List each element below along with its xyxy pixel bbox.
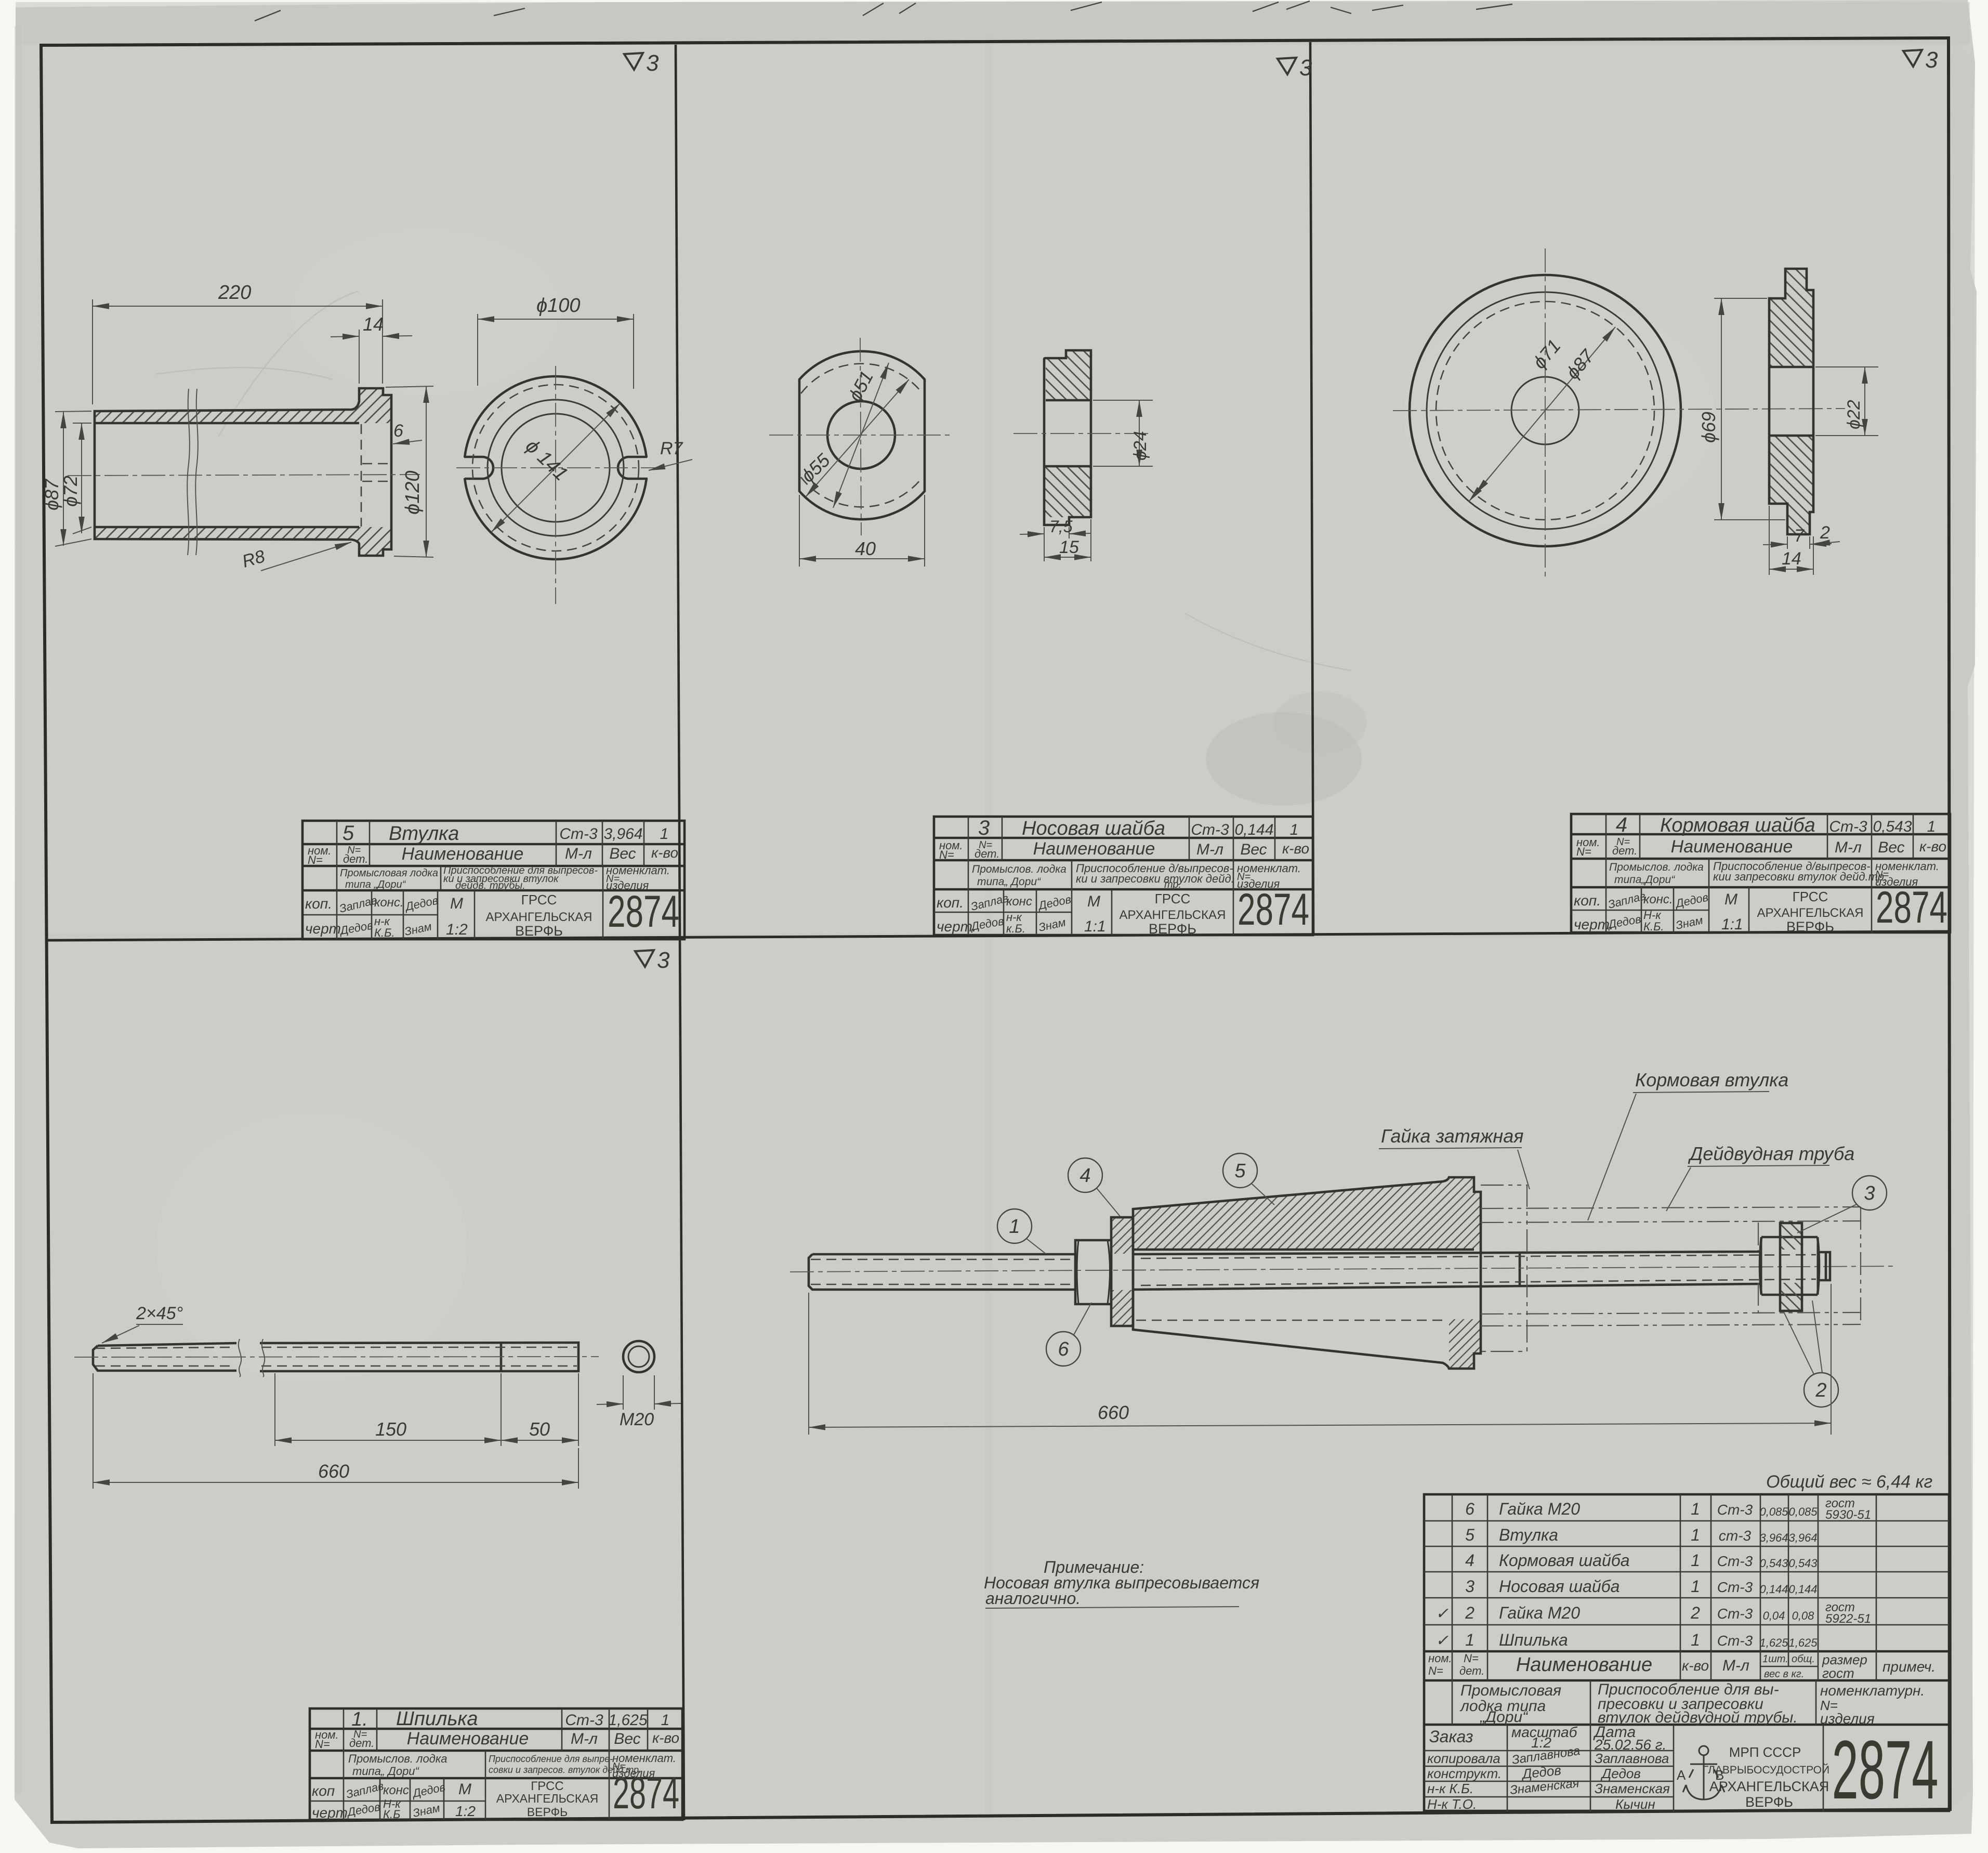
svg-text:Ст-3: Ст-3 bbox=[559, 825, 598, 843]
svg-text:Кычин: Кычин bbox=[1615, 1796, 1655, 1812]
svg-text:2: 2 bbox=[1465, 1604, 1474, 1622]
svg-text:0,144: 0,144 bbox=[1759, 1583, 1788, 1596]
svg-text:Промысловая: Промысловая bbox=[1460, 1682, 1561, 1699]
svg-text:ϕ22: ϕ22 bbox=[1844, 400, 1864, 429]
svg-text:3: 3 bbox=[978, 817, 990, 839]
svg-text:примеч.: примеч. bbox=[1882, 1659, 1936, 1675]
svg-text:М: М bbox=[458, 1781, 471, 1798]
svg-text:4: 4 bbox=[1616, 813, 1627, 836]
svg-text:Шпилька: Шпилька bbox=[1499, 1631, 1568, 1649]
svg-text:N=: N= bbox=[939, 848, 954, 861]
svg-text:М-л: М-л bbox=[1722, 1657, 1749, 1674]
svg-text:копировала: копировала bbox=[1427, 1751, 1500, 1766]
svg-text:3,964: 3,964 bbox=[603, 825, 642, 843]
svg-text:Ст-3: Ст-3 bbox=[1717, 1579, 1753, 1595]
svg-text:Вес: Вес bbox=[1878, 839, 1904, 856]
svg-text:6: 6 bbox=[1465, 1500, 1474, 1518]
svg-text:Дедов: Дедов bbox=[1600, 1766, 1641, 1781]
svg-text:Ст-3: Ст-3 bbox=[1717, 1502, 1753, 1518]
svg-text:1шт.: 1шт. bbox=[1762, 1653, 1788, 1665]
svg-text:к.Б.: к.Б. bbox=[1006, 922, 1025, 935]
svg-text:М-л: М-л bbox=[571, 1730, 598, 1747]
svg-text:общ.: общ. bbox=[1792, 1653, 1815, 1665]
svg-text:Общий вес ≈ 6,44 кг: Общий вес ≈ 6,44 кг bbox=[1766, 1472, 1932, 1492]
svg-text:М-л: М-л bbox=[1196, 841, 1223, 858]
svg-text:дет.: дет. bbox=[349, 1737, 374, 1750]
svg-text:3: 3 bbox=[1925, 47, 1938, 73]
svg-text:к-во: к-во bbox=[651, 845, 678, 861]
svg-text:3,964: 3,964 bbox=[1788, 1531, 1817, 1544]
svg-text:2: 2 bbox=[1820, 523, 1830, 543]
svg-text:6: 6 bbox=[393, 421, 403, 441]
svg-text:Вес: Вес bbox=[1240, 841, 1267, 858]
svg-text:ст-3: ст-3 bbox=[1719, 1528, 1752, 1544]
svg-text:Ст-3: Ст-3 bbox=[1829, 818, 1867, 835]
svg-text:ГРСС: ГРСС bbox=[1155, 891, 1191, 906]
svg-text:1: 1 bbox=[1691, 1551, 1700, 1570]
svg-text:дет.: дет. bbox=[343, 852, 368, 865]
svg-text:типа„Дори“: типа„Дори“ bbox=[1614, 874, 1675, 886]
svg-text:дет.: дет. bbox=[1612, 844, 1637, 857]
svg-text:N=: N= bbox=[1428, 1664, 1443, 1677]
svg-text:кии запресовки втулок дейд.тр.: кии запресовки втулок дейд.тр. bbox=[1713, 870, 1887, 883]
svg-text:МРП СССР: МРП СССР bbox=[1729, 1744, 1801, 1760]
svg-text:к-во: к-во bbox=[1682, 1658, 1709, 1674]
svg-text:к-во: к-во bbox=[1282, 840, 1309, 857]
svg-text:0,543: 0,543 bbox=[1788, 1557, 1818, 1570]
svg-text:Вес: Вес bbox=[609, 845, 636, 862]
svg-text:5922-51: 5922-51 bbox=[1825, 1612, 1871, 1626]
svg-text:Приспособление для выпре-: Приспособление для выпре- bbox=[489, 1754, 613, 1764]
svg-text:Заказ: Заказ bbox=[1429, 1727, 1473, 1746]
svg-text:2874: 2874 bbox=[1832, 1723, 1939, 1816]
svg-text:2×45°: 2×45° bbox=[136, 1304, 183, 1323]
svg-text:1:1: 1:1 bbox=[1721, 916, 1743, 933]
svg-text:5: 5 bbox=[1234, 1160, 1246, 1182]
svg-text:коп.: коп. bbox=[1574, 892, 1601, 909]
svg-text:Шпилька: Шпилька bbox=[396, 1708, 478, 1730]
svg-text:ВЕРФЬ: ВЕРФЬ bbox=[1745, 1794, 1793, 1810]
svg-text:ВЕРФЬ: ВЕРФЬ bbox=[1786, 919, 1834, 935]
svg-text:н-к К.Б.: н-к К.Б. bbox=[1427, 1781, 1473, 1796]
svg-text:Кормовая втулка: Кормовая втулка bbox=[1635, 1069, 1788, 1090]
svg-text:Ст-3: Ст-3 bbox=[1191, 821, 1229, 838]
svg-text:Носовая шайба: Носовая шайба bbox=[1022, 818, 1165, 839]
svg-text:М-л: М-л bbox=[1835, 839, 1862, 856]
svg-text:Втулка: Втулка bbox=[1499, 1526, 1558, 1544]
svg-text:Промыслов. лодка: Промыслов. лодка bbox=[1609, 861, 1704, 873]
svg-text:660: 660 bbox=[318, 1461, 349, 1482]
svg-text:ϕ120: ϕ120 bbox=[402, 470, 424, 515]
svg-text:1:2: 1:2 bbox=[455, 1803, 476, 1819]
svg-text:14: 14 bbox=[363, 313, 384, 335]
svg-text:ном.: ном. bbox=[1428, 1652, 1452, 1665]
svg-text:2: 2 bbox=[1690, 1604, 1700, 1622]
svg-text:3: 3 bbox=[657, 948, 670, 973]
svg-text:15: 15 bbox=[1059, 537, 1079, 557]
svg-text:1: 1 bbox=[1691, 1500, 1700, 1518]
svg-text:4: 4 bbox=[1465, 1551, 1474, 1570]
svg-text:АРХАНГЕЛЬСКАЯ: АРХАНГЕЛЬСКАЯ bbox=[496, 1792, 598, 1805]
svg-text:А: А bbox=[1677, 1767, 1686, 1783]
svg-text:1.: 1. bbox=[351, 1709, 368, 1730]
svg-text:М: М bbox=[450, 895, 463, 912]
svg-text:Промыслов. лодка: Промыслов. лодка bbox=[972, 863, 1067, 875]
svg-text:Ст-3: Ст-3 bbox=[1717, 1606, 1753, 1622]
svg-text:✓: ✓ bbox=[1436, 1605, 1449, 1622]
svg-text:Вес: Вес bbox=[614, 1730, 640, 1747]
svg-text:R7: R7 bbox=[660, 439, 683, 458]
svg-text:М: М bbox=[1724, 891, 1737, 908]
svg-text:дейдв. трубы.: дейдв. трубы. bbox=[455, 880, 525, 891]
svg-text:конс: конс bbox=[383, 1783, 409, 1797]
svg-text:0,08: 0,08 bbox=[1792, 1609, 1815, 1622]
svg-text:3: 3 bbox=[1465, 1577, 1474, 1596]
svg-text:ϕ72: ϕ72 bbox=[60, 476, 81, 507]
svg-text:1,625: 1,625 bbox=[608, 1712, 647, 1729]
svg-text:ГРСС: ГРСС bbox=[531, 1779, 563, 1793]
svg-text:Кормовая шайба: Кормовая шайба bbox=[1660, 814, 1815, 836]
svg-text:1: 1 bbox=[1691, 1577, 1700, 1596]
svg-text:Наименование: Наименование bbox=[1671, 837, 1793, 857]
svg-text:2874: 2874 bbox=[1876, 883, 1947, 932]
svg-text:1: 1 bbox=[1290, 821, 1299, 838]
svg-text:1: 1 bbox=[1009, 1216, 1020, 1238]
svg-text:конс.: конс. bbox=[1643, 892, 1673, 906]
svg-text:50: 50 bbox=[529, 1418, 550, 1440]
svg-text:Носовая шайба: Носовая шайба bbox=[1499, 1577, 1620, 1596]
svg-text:коп: коп bbox=[312, 1783, 335, 1799]
svg-text:5: 5 bbox=[1465, 1526, 1474, 1544]
svg-text:1: 1 bbox=[661, 1712, 670, 1729]
svg-text:0,144: 0,144 bbox=[1234, 821, 1273, 838]
svg-text:7: 7 bbox=[1794, 526, 1805, 546]
svg-text:1,625: 1,625 bbox=[1759, 1636, 1788, 1649]
svg-text:ГЛАВРЫБОСУДОСТРОЙ: ГЛАВРЫБОСУДОСТРОЙ bbox=[1703, 1764, 1829, 1776]
svg-text:1: 1 bbox=[1927, 818, 1936, 835]
svg-text:к-во: к-во bbox=[1919, 838, 1946, 855]
svg-text:гост: гост bbox=[1822, 1665, 1854, 1681]
svg-text:АРХАНГЕЛЬСКАЯ: АРХАНГЕЛЬСКАЯ bbox=[486, 910, 593, 924]
svg-text:ВЕРФЬ: ВЕРФЬ bbox=[527, 1805, 568, 1819]
svg-text:6: 6 bbox=[1058, 1338, 1069, 1360]
svg-text:конс.: конс. bbox=[374, 896, 404, 910]
svg-text:40: 40 bbox=[855, 538, 876, 559]
svg-text:1:2: 1:2 bbox=[446, 921, 468, 938]
svg-text:1: 1 bbox=[660, 825, 669, 843]
svg-text:2874: 2874 bbox=[613, 1768, 679, 1818]
svg-text:Ст-3: Ст-3 bbox=[1717, 1553, 1753, 1569]
svg-text:3: 3 bbox=[646, 50, 659, 76]
svg-text:3: 3 bbox=[1299, 55, 1312, 81]
svg-text:АРХАНГЕЛЬСКАЯ: АРХАНГЕЛЬСКАЯ bbox=[1120, 908, 1226, 922]
svg-text:к-во: к-во bbox=[652, 1730, 679, 1746]
svg-text:номенклатурн.: номенклатурн. bbox=[1820, 1683, 1925, 1699]
svg-text:1,625: 1,625 bbox=[1788, 1636, 1818, 1649]
svg-text:ϕ100: ϕ100 bbox=[536, 295, 581, 317]
svg-text:коп.: коп. bbox=[937, 895, 964, 911]
svg-text:660: 660 bbox=[1098, 1402, 1129, 1423]
svg-text:ки и запресовки втулок дейд.: ки и запресовки втулок дейд. bbox=[1076, 872, 1234, 885]
svg-text:220: 220 bbox=[218, 282, 251, 304]
svg-text:конструкт.: конструкт. bbox=[1427, 1766, 1502, 1781]
svg-text:14: 14 bbox=[1782, 549, 1801, 569]
svg-text:5: 5 bbox=[343, 822, 354, 845]
svg-text:тр.: тр. bbox=[1164, 879, 1181, 890]
svg-text:типа „Дори“: типа „Дори“ bbox=[345, 879, 406, 890]
svg-text:N=: N= bbox=[308, 853, 323, 866]
svg-text:черт: черт bbox=[312, 1805, 348, 1821]
svg-text:0,543: 0,543 bbox=[1873, 818, 1912, 835]
svg-text:3: 3 bbox=[1864, 1182, 1875, 1204]
svg-text:АРХАНГЕЛЬСКАЯ: АРХАНГЕЛЬСКАЯ bbox=[1709, 1779, 1829, 1794]
svg-text:0,144: 0,144 bbox=[1788, 1583, 1817, 1596]
svg-text:Кормовая шайба: Кормовая шайба bbox=[1499, 1551, 1630, 1570]
svg-text:✓: ✓ bbox=[1436, 1632, 1449, 1649]
svg-text:Ст-3: Ст-3 bbox=[565, 1712, 603, 1729]
svg-text:150: 150 bbox=[375, 1418, 406, 1440]
svg-text:Н-к Т.О.: Н-к Т.О. bbox=[1427, 1796, 1477, 1812]
svg-text:К.Б.: К.Б. bbox=[1643, 920, 1664, 933]
svg-text:К.Б.: К.Б. bbox=[374, 926, 395, 939]
svg-text:Наименование: Наименование bbox=[402, 844, 524, 864]
svg-text:ϕ69: ϕ69 bbox=[1698, 412, 1719, 443]
svg-text:Промыслов. лодка: Промыслов. лодка bbox=[348, 1752, 447, 1765]
svg-text:дет.: дет. bbox=[1459, 1664, 1484, 1677]
svg-text:М20: М20 bbox=[620, 1410, 654, 1429]
svg-text:ВЕРФЬ: ВЕРФЬ bbox=[515, 923, 563, 939]
svg-text:черт.: черт. bbox=[305, 921, 345, 937]
svg-text:Знаменская: Знаменская bbox=[1595, 1781, 1670, 1796]
svg-text:0,085: 0,085 bbox=[1788, 1505, 1818, 1518]
svg-text:Наименование: Наименование bbox=[1033, 839, 1155, 859]
svg-text:аналогично.: аналогично. bbox=[985, 1589, 1081, 1608]
svg-text:Наименование: Наименование bbox=[1516, 1654, 1652, 1676]
svg-text:Втулка: Втулка bbox=[389, 823, 459, 845]
svg-text:1: 1 bbox=[1465, 1631, 1474, 1649]
svg-text:ГРСС: ГРСС bbox=[1793, 889, 1828, 904]
svg-text:М-л: М-л bbox=[565, 845, 592, 862]
svg-text:дет.: дет. bbox=[975, 847, 999, 860]
svg-text:„Дори“: „Дори“ bbox=[1479, 1709, 1529, 1726]
svg-text:2: 2 bbox=[1815, 1379, 1826, 1401]
svg-text:N=: N= bbox=[1576, 845, 1591, 858]
svg-text:3,964: 3,964 bbox=[1759, 1531, 1788, 1544]
svg-text:типа„ Дори“: типа„ Дори“ bbox=[352, 1765, 420, 1778]
svg-text:М: М bbox=[1087, 893, 1100, 910]
svg-text:0,04: 0,04 bbox=[1763, 1609, 1785, 1622]
svg-text:4: 4 bbox=[1079, 1165, 1090, 1187]
svg-text:Гайка М20: Гайка М20 bbox=[1499, 1500, 1580, 1518]
svg-text:ϕ87: ϕ87 bbox=[41, 478, 62, 510]
svg-text:2874: 2874 bbox=[608, 887, 679, 937]
svg-text:типа„ Дори“: типа„ Дори“ bbox=[977, 876, 1041, 888]
svg-text:1: 1 bbox=[1691, 1526, 1700, 1544]
svg-text:ϕ24: ϕ24 bbox=[1130, 431, 1150, 461]
svg-text:Промысловая лодка: Промысловая лодка bbox=[340, 868, 438, 879]
svg-text:2874: 2874 bbox=[1237, 885, 1309, 935]
svg-text:7,5: 7,5 bbox=[1049, 517, 1073, 536]
svg-text:1:1: 1:1 bbox=[1084, 918, 1106, 935]
svg-text:0,085: 0,085 bbox=[1759, 1505, 1788, 1518]
svg-text:ГРСС: ГРСС bbox=[521, 892, 557, 908]
svg-text:коп.: коп. bbox=[305, 896, 332, 912]
svg-text:Гайка М20: Гайка М20 bbox=[1499, 1604, 1580, 1622]
svg-text:К.Б: К.Б bbox=[383, 1808, 400, 1821]
svg-text:Наименование: Наименование bbox=[407, 1729, 529, 1749]
svg-text:АРХАНГЕЛЬСКАЯ: АРХАНГЕЛЬСКАЯ bbox=[1757, 906, 1864, 920]
svg-text:1: 1 bbox=[1691, 1631, 1700, 1649]
svg-text:Заплавнова: Заплавнова bbox=[1595, 1751, 1669, 1766]
svg-text:Дейдвудная труба: Дейдвудная труба bbox=[1688, 1143, 1854, 1164]
svg-text:N=: N= bbox=[315, 1738, 330, 1751]
svg-text:0,543: 0,543 bbox=[1759, 1557, 1788, 1570]
svg-text:Гайка затяжная: Гайка затяжная bbox=[1381, 1125, 1523, 1147]
svg-text:Ст-3: Ст-3 bbox=[1717, 1633, 1753, 1649]
svg-text:вес в кг.: вес в кг. bbox=[1764, 1668, 1804, 1680]
svg-text:5930-51: 5930-51 bbox=[1825, 1508, 1871, 1522]
svg-text:конс: конс bbox=[1006, 895, 1032, 909]
svg-text:N=: N= bbox=[1464, 1652, 1479, 1665]
svg-text:ВЕРФЬ: ВЕРФЬ bbox=[1149, 921, 1196, 937]
